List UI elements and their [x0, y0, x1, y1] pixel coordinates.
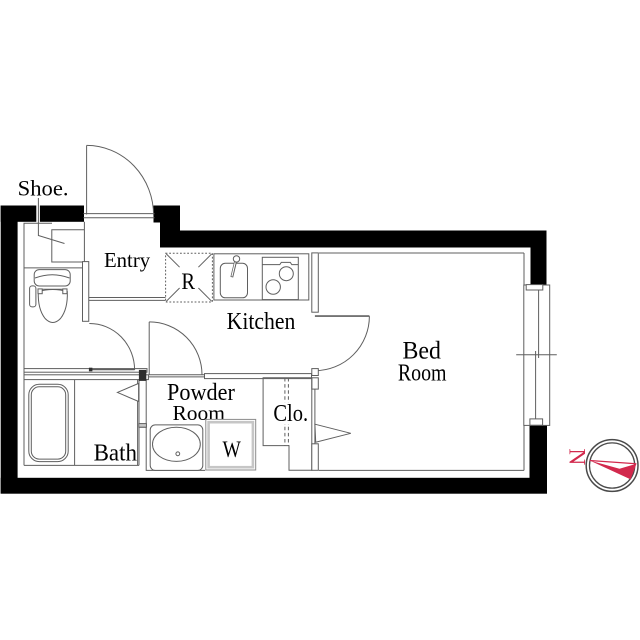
svg-text:W: W [223, 436, 242, 462]
svg-text:Shoe.: Shoe. [18, 176, 69, 201]
svg-text:Bath: Bath [94, 440, 138, 467]
svg-text:Entry: Entry [104, 248, 151, 272]
svg-text:Kitchen: Kitchen [227, 308, 296, 336]
svg-text:Clo.: Clo. [273, 400, 308, 427]
svg-text:R: R [181, 269, 195, 294]
svg-text:N: N [563, 448, 589, 465]
svg-text:Room: Room [398, 359, 447, 386]
